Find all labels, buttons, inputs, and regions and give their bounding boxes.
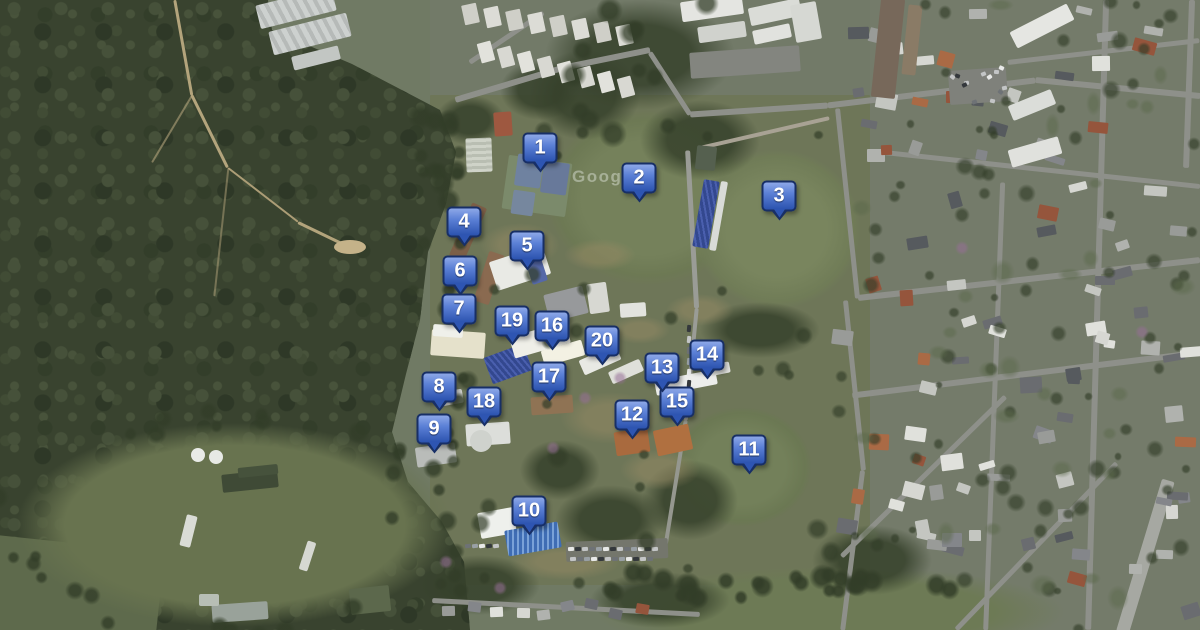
marker-label: 1 [534, 137, 545, 159]
map-marker-8[interactable]: 8 [422, 372, 457, 403]
marker-label: 10 [518, 500, 540, 522]
marker-label: 14 [696, 344, 718, 366]
map-marker-14[interactable]: 14 [690, 340, 725, 371]
marker-label: 9 [428, 418, 439, 440]
marker-layer: 1234567891011121314151617181920 [0, 0, 1200, 630]
marker-label: 18 [473, 391, 495, 413]
map-marker-4[interactable]: 4 [447, 207, 482, 238]
marker-label: 15 [666, 391, 688, 413]
map-marker-7[interactable]: 7 [442, 294, 477, 325]
map-marker-6[interactable]: 6 [443, 256, 478, 287]
marker-label: 11 [738, 439, 759, 461]
marker-label: 12 [621, 404, 643, 426]
marker-label: 2 [633, 167, 644, 189]
marker-label: 17 [538, 366, 560, 388]
map-marker-1[interactable]: 1 [523, 133, 558, 164]
map-marker-3[interactable]: 3 [762, 181, 797, 212]
map-marker-2[interactable]: 2 [622, 163, 657, 194]
map-marker-13[interactable]: 13 [645, 353, 680, 384]
map-marker-10[interactable]: 10 [512, 496, 547, 527]
map-marker-5[interactable]: 5 [510, 231, 545, 262]
map-marker-16[interactable]: 16 [535, 311, 570, 342]
map-marker-9[interactable]: 9 [417, 414, 452, 445]
marker-label: 20 [591, 330, 613, 352]
satellite-map[interactable]: Google 1234567891011121314151617181920 [0, 0, 1200, 630]
map-marker-18[interactable]: 18 [467, 387, 502, 418]
marker-label: 5 [521, 235, 532, 257]
map-marker-17[interactable]: 17 [532, 362, 567, 393]
map-marker-11[interactable]: 11 [732, 435, 767, 466]
marker-label: 4 [458, 211, 469, 233]
marker-label: 3 [773, 185, 784, 207]
marker-label: 8 [433, 376, 444, 398]
map-marker-12[interactable]: 12 [615, 400, 650, 431]
marker-label: 6 [454, 260, 465, 282]
marker-label: 16 [541, 315, 563, 337]
marker-label: 7 [453, 298, 464, 320]
map-marker-20[interactable]: 20 [585, 326, 620, 357]
marker-label: 13 [651, 357, 673, 379]
map-marker-19[interactable]: 19 [495, 306, 530, 337]
marker-label: 19 [501, 310, 523, 332]
